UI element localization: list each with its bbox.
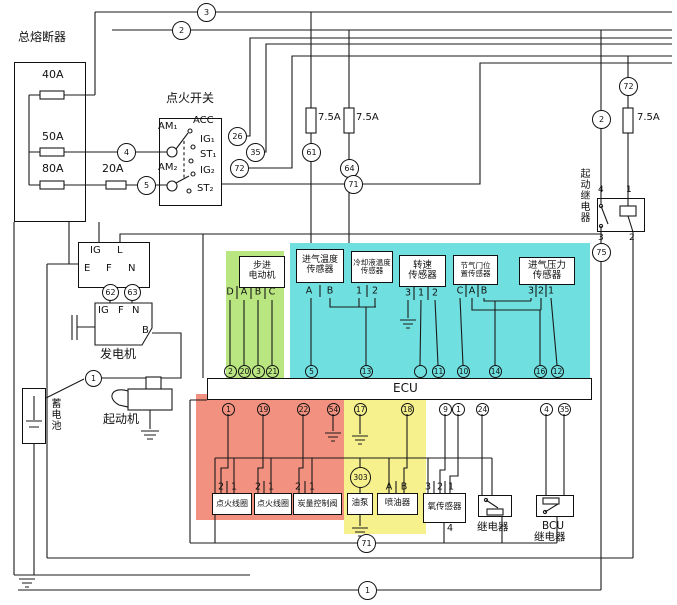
- starter-relay-box: [597, 198, 645, 232]
- wire-connector-circle: 35: [246, 143, 265, 162]
- ecu-pin-circle: 303: [350, 467, 371, 488]
- generator-f: F: [118, 306, 124, 316]
- terminal-acc: ACC: [193, 116, 214, 126]
- starter-relay-title: 起动继电器: [578, 168, 588, 223]
- ecu-pin-circle: 22: [297, 403, 310, 416]
- fuel-pump-label: 油泵: [351, 499, 368, 508]
- ecu-pin-circle: 14: [489, 365, 502, 378]
- wire-connector-circle: 26: [228, 127, 247, 146]
- ecu-pin-circle: 54: [327, 403, 340, 416]
- ecu-pin-circle: 21: [266, 365, 279, 378]
- terminal-ig2: IG₂: [200, 166, 215, 176]
- injector-box: 喷油器: [377, 493, 418, 515]
- stepper-motor-box: 步进 电动机: [239, 256, 285, 288]
- sensor-wires: [311, 298, 557, 365]
- pin-label: 3: [528, 286, 534, 296]
- terminal-am2: AM₂: [158, 163, 177, 173]
- pin-label: 1: [356, 286, 362, 296]
- fuse-50a-label: 50A: [42, 131, 64, 142]
- wire-connector-circle: 61: [302, 143, 321, 162]
- pin-label: B: [255, 287, 262, 297]
- pin-label: 2: [295, 482, 301, 492]
- pin-label: 3: [425, 482, 431, 492]
- oxygen-sensor-label: 氧传感器: [427, 503, 461, 512]
- ecu-pin-circle: 9: [439, 403, 452, 416]
- fuse-75a-label-2: 7.5A: [356, 113, 379, 123]
- starter-title: 起动机: [103, 413, 139, 425]
- generator-n: N: [132, 306, 139, 316]
- connector-e: E: [84, 264, 90, 274]
- ecu-pin-circle: [414, 365, 427, 378]
- ecu-pin-circle: 3: [252, 365, 265, 378]
- map-sensor-box: 进气压力 传感器: [519, 257, 575, 285]
- starter-relay-pin3: 3: [598, 234, 604, 243]
- pin-label: 2: [218, 482, 224, 492]
- main-relay-box: [478, 495, 512, 517]
- connector-n: N: [128, 264, 135, 274]
- starter-motor-symbol: [112, 377, 172, 410]
- main-relay-title: 继电器: [477, 522, 509, 533]
- pin-label: 2: [437, 482, 443, 492]
- pin-label: 1: [418, 288, 424, 298]
- bcu-relay-box: [536, 495, 574, 517]
- fuse-40a-label: 40A: [42, 69, 64, 80]
- terminal-ig1: IG₁: [200, 135, 215, 145]
- wire-connector-circle: 4: [117, 143, 136, 162]
- bcu-relay-title-2: 继电器: [534, 532, 566, 543]
- flow-control-valve-label: 炭量控制阀: [298, 500, 338, 509]
- generator-ig: IG: [98, 306, 109, 316]
- flow-control-valve-box: 炭量控制阀: [293, 493, 342, 515]
- pin-label: 2: [538, 286, 544, 296]
- speed-sensor-box: 转速 传感器: [399, 255, 446, 287]
- stepper-label-2: 电动机: [248, 272, 275, 282]
- wire-connector-circle: 5: [137, 176, 156, 195]
- connector-ig: IG: [90, 246, 101, 256]
- pin-label: A: [306, 286, 313, 296]
- wire-connector-circle: 62: [102, 284, 119, 301]
- pin-label: 1: [548, 286, 554, 296]
- tps-label-2: 置传感器: [461, 270, 491, 278]
- pin-label: D: [226, 287, 233, 297]
- battery-title: 蓄电池: [49, 398, 59, 431]
- starter-relay-pin4: 4: [598, 186, 604, 195]
- main-fuse-box-title: 总熔断器: [18, 31, 66, 43]
- ecu-pin-circle: 10: [457, 365, 470, 378]
- pin-label: B: [401, 482, 408, 492]
- ecu-pin-circle: 11: [432, 365, 445, 378]
- ecu-pin-circle: 4: [540, 403, 553, 416]
- intake-temp-label-2: 传感器: [306, 266, 333, 276]
- ecu-pin-circle: 19: [257, 403, 270, 416]
- wire-connector-circle: 3: [197, 3, 216, 22]
- pin-label: A: [241, 287, 248, 297]
- wire-connector-circle: 1: [358, 581, 377, 600]
- fuse-75a-label-3: 7.5A: [637, 113, 660, 123]
- ecu-pin-circle: 16: [534, 365, 547, 378]
- pin-label: 1: [268, 482, 274, 492]
- ecu-pin-circle: 2: [224, 365, 237, 378]
- pin-label: 1: [231, 482, 237, 492]
- fuel-pump-box: 油泵: [347, 493, 373, 515]
- wire-connector-circle: 2: [172, 21, 191, 40]
- ecu-pin-circle: 12: [551, 365, 564, 378]
- ignition-coil-2-box: 点火线圈: [254, 493, 292, 515]
- connector-l: L: [117, 246, 123, 256]
- intake-temp-sensor-box: 进气温度 传感器: [296, 249, 344, 283]
- fuse-20a-label: 20A: [102, 163, 124, 174]
- connector-f: F: [106, 264, 112, 274]
- ignition-switch-title: 点火开关: [166, 92, 214, 104]
- pin-label: B: [327, 286, 334, 296]
- wire-connector-circle: 72: [230, 159, 249, 178]
- wiring-diagram: 步进 电动机 进气温度 传感器 冷却液温度 传感器 转速 传感器 节气门位 置传…: [0, 0, 677, 605]
- wire-connector-circle: 71: [357, 534, 376, 553]
- ignition-coil-2-label: 点火线圈: [257, 500, 289, 509]
- ecu-pin-circle: 35: [558, 403, 571, 416]
- speed-sensor-label-2: 传感器: [408, 271, 437, 281]
- wire-connector-circle: 1: [85, 370, 102, 387]
- starter-relay-pin1: 1: [626, 186, 632, 195]
- ecu-pin-circle: 1: [452, 403, 465, 416]
- ecu-pin-circle: 1: [222, 403, 235, 416]
- coolant-temp-sensor-box: 冷却液温度 传感器: [351, 251, 393, 283]
- pin-label: 1: [309, 482, 315, 492]
- generator-b: B: [142, 326, 149, 336]
- ecu-pin-circle: 20: [238, 365, 251, 378]
- terminal-st1: ST₁: [200, 150, 216, 160]
- starter-relay-pin2: 2: [629, 234, 635, 243]
- wire-connector-circle: 72: [619, 77, 638, 96]
- pin-label: 2: [432, 288, 438, 298]
- ecu-pin-circle: 24: [476, 403, 489, 416]
- pin-label: A: [386, 482, 393, 492]
- ignition-coil-1-box: 点火线圈: [212, 493, 252, 515]
- ecu-pin-circle: 17: [354, 403, 367, 416]
- wire-connector-circle: 75: [592, 243, 611, 262]
- ecu-pin-circle: 5: [305, 365, 318, 378]
- generator-title: 发电机: [100, 348, 136, 360]
- stepper-wires: [230, 300, 272, 365]
- pin-label: 3: [405, 288, 411, 298]
- pin-label: C: [457, 286, 464, 296]
- pin-label: 2: [255, 482, 261, 492]
- throttle-position-sensor-box: 节气门位 置传感器: [453, 255, 498, 285]
- map-sensor-label-2: 传感器: [533, 271, 562, 281]
- pin-label: 1: [448, 482, 454, 492]
- ignition-coil-1-label: 点火线圈: [216, 500, 248, 509]
- wire-connector-circle: 71: [344, 175, 363, 194]
- pin-label: C: [269, 287, 276, 297]
- pin-label: A: [469, 286, 476, 296]
- terminal-am1: AM₁: [158, 122, 177, 132]
- ecu-pin-circle: 18: [401, 403, 414, 416]
- pin-label: B: [481, 286, 488, 296]
- wire-connector-circle: 2: [592, 110, 611, 129]
- terminal-st2: ST₂: [197, 184, 213, 194]
- ecu-pin-circle: 13: [360, 365, 373, 378]
- pin-label: 2: [372, 286, 378, 296]
- fuse-80a-label: 80A: [42, 163, 64, 174]
- fuse-75a-label-1: 7.5A: [318, 113, 341, 123]
- injector-label: 喷油器: [385, 499, 411, 508]
- ecu-title: ECU: [393, 382, 418, 394]
- coolant-temp-label-2: 传感器: [361, 267, 384, 275]
- oxygen-sensor-box: 氧传感器: [423, 493, 466, 523]
- bcu-relay-title-1: BCU: [542, 521, 564, 532]
- battery-box: [22, 388, 46, 444]
- oxygen-sensor-pin4: 4: [447, 524, 453, 534]
- wire-connector-circle: 63: [124, 284, 141, 301]
